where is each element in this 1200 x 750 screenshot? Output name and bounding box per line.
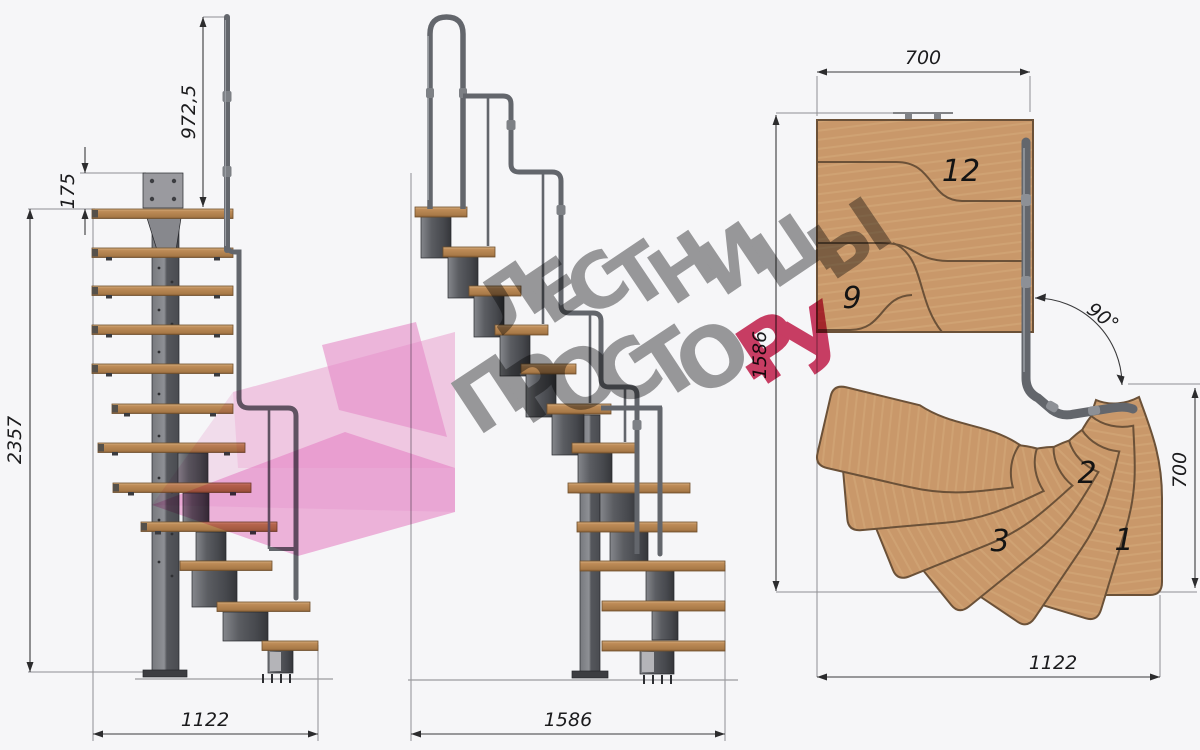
step [217,602,310,612]
plan-step-9-label: 9 [842,281,861,316]
side-view: 1586 [408,17,738,741]
step [602,601,725,611]
step [141,522,277,532]
step [495,325,548,335]
step [568,483,690,493]
step [262,641,318,651]
step [180,561,272,571]
front-total-height-label: 2357 [4,416,26,464]
step [602,641,725,651]
plan-angle-dimension: 90° [1035,294,1125,386]
technical-drawing-canvas: 972,5 175 2357 1122 [0,0,1200,750]
plan-step-12-label: 12 [942,154,980,189]
step [98,443,245,453]
plan-width-top-dimension: 700 [817,47,1030,116]
step [112,404,233,414]
step [92,286,233,296]
plan-depth-right-label: 700 [1169,452,1191,488]
step [415,207,467,217]
front-plate-dimension: 175 [57,147,89,235]
plan-width-bottom-dimension: 1122 [817,595,1160,681]
front-total-height-dimension: 2357 [4,209,34,672]
plan-view: 12 9 3 2 1 700 [749,47,1200,681]
staircase-drawing: 972,5 175 2357 1122 [0,0,1200,750]
front-plate-label: 175 [57,173,79,209]
front-rail-height-label: 972,5 [178,85,200,139]
side-length-dimension: 1586 [411,709,725,738]
plan-handrail [1021,142,1133,416]
plan-depth-left-label: 1586 [749,331,771,379]
front-column-base [143,670,187,677]
front-width-label: 1122 [181,709,229,731]
step [92,209,233,219]
plan-width-top-label: 700 [905,47,941,69]
step [580,561,725,571]
step [443,247,495,257]
step [521,364,576,374]
step [92,325,233,335]
front-view: 972,5 175 2357 1122 [4,17,333,741]
plan-width-bottom-label: 1122 [1029,652,1077,674]
plan-step-3-label: 3 [990,524,1009,559]
side-length-label: 1586 [544,709,592,731]
step [113,483,251,493]
front-handrail [223,17,297,598]
front-mount-plate [143,173,183,208]
plan-step-1-label: 1 [1114,523,1133,558]
front-width-dimension: 1122 [93,709,318,738]
plan-wall-bracket [893,113,953,119]
step [92,364,233,374]
step [92,248,233,258]
step [469,286,521,296]
step [572,443,636,453]
plan-angle-label: 90° [1083,298,1123,336]
plan-step-2-label: 2 [1077,456,1096,491]
